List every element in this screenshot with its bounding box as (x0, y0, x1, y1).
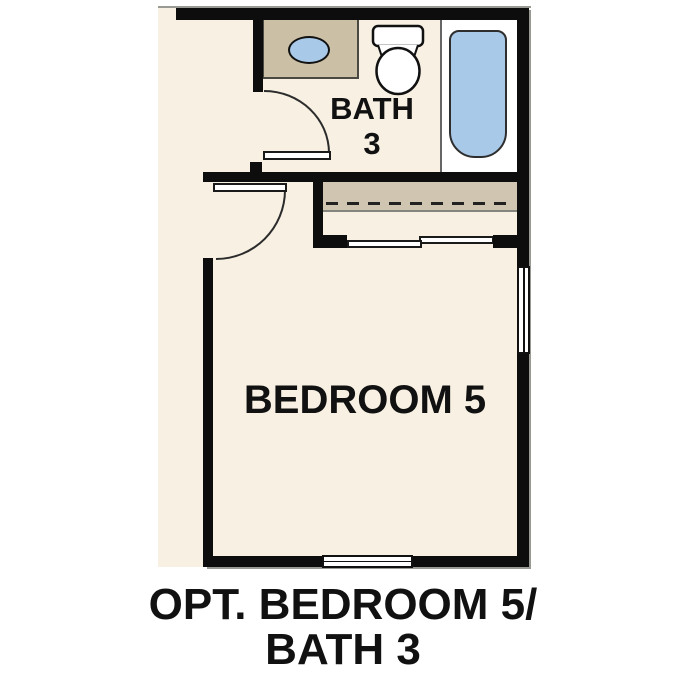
plan-caption-line2: BATH 3 (113, 627, 573, 672)
floor-plan: BATH 3 BEDROOM 5 OPT. BEDROOM 5/ BATH 3 (0, 0, 687, 687)
closet-shelf (323, 180, 517, 210)
closet-rod-dashed-line (326, 202, 515, 205)
wall-bottom-right-segment (412, 556, 529, 567)
toilet-fixture (371, 24, 425, 96)
wall-bedroom-top (203, 172, 519, 182)
window-bottom-mullion (324, 561, 411, 563)
sink (288, 36, 330, 64)
bathroom-label-line1: BATH (306, 91, 438, 126)
wall-bottom-left-segment (203, 556, 324, 567)
wall-hall-bath-divider (253, 18, 263, 92)
wall-right-upper (517, 8, 529, 267)
plan-caption: OPT. BEDROOM 5/ BATH 3 (113, 582, 573, 672)
wall-closet-slider-left-stub (313, 235, 347, 248)
toilet-icon (371, 24, 425, 96)
closet-slider-right-panel (419, 236, 494, 244)
window-right-mullion (523, 268, 525, 352)
wall-bedroom-left (203, 258, 213, 567)
bedroom-door-panel (213, 183, 287, 192)
plan-caption-line1: OPT. BEDROOM 5/ (113, 582, 573, 627)
closet-shelf-edge-line (323, 210, 517, 212)
bathroom-door-panel (263, 151, 331, 160)
window-right-wall (517, 266, 530, 354)
bedroom-label: BEDROOM 5 (213, 378, 517, 422)
wall-closet-slider-right-stub (493, 235, 519, 248)
closet-slider-left-panel (347, 240, 422, 248)
wall-right-lower (517, 353, 529, 567)
window-bottom-wall (322, 555, 413, 568)
bathtub (449, 30, 507, 158)
wall-top (176, 8, 529, 20)
